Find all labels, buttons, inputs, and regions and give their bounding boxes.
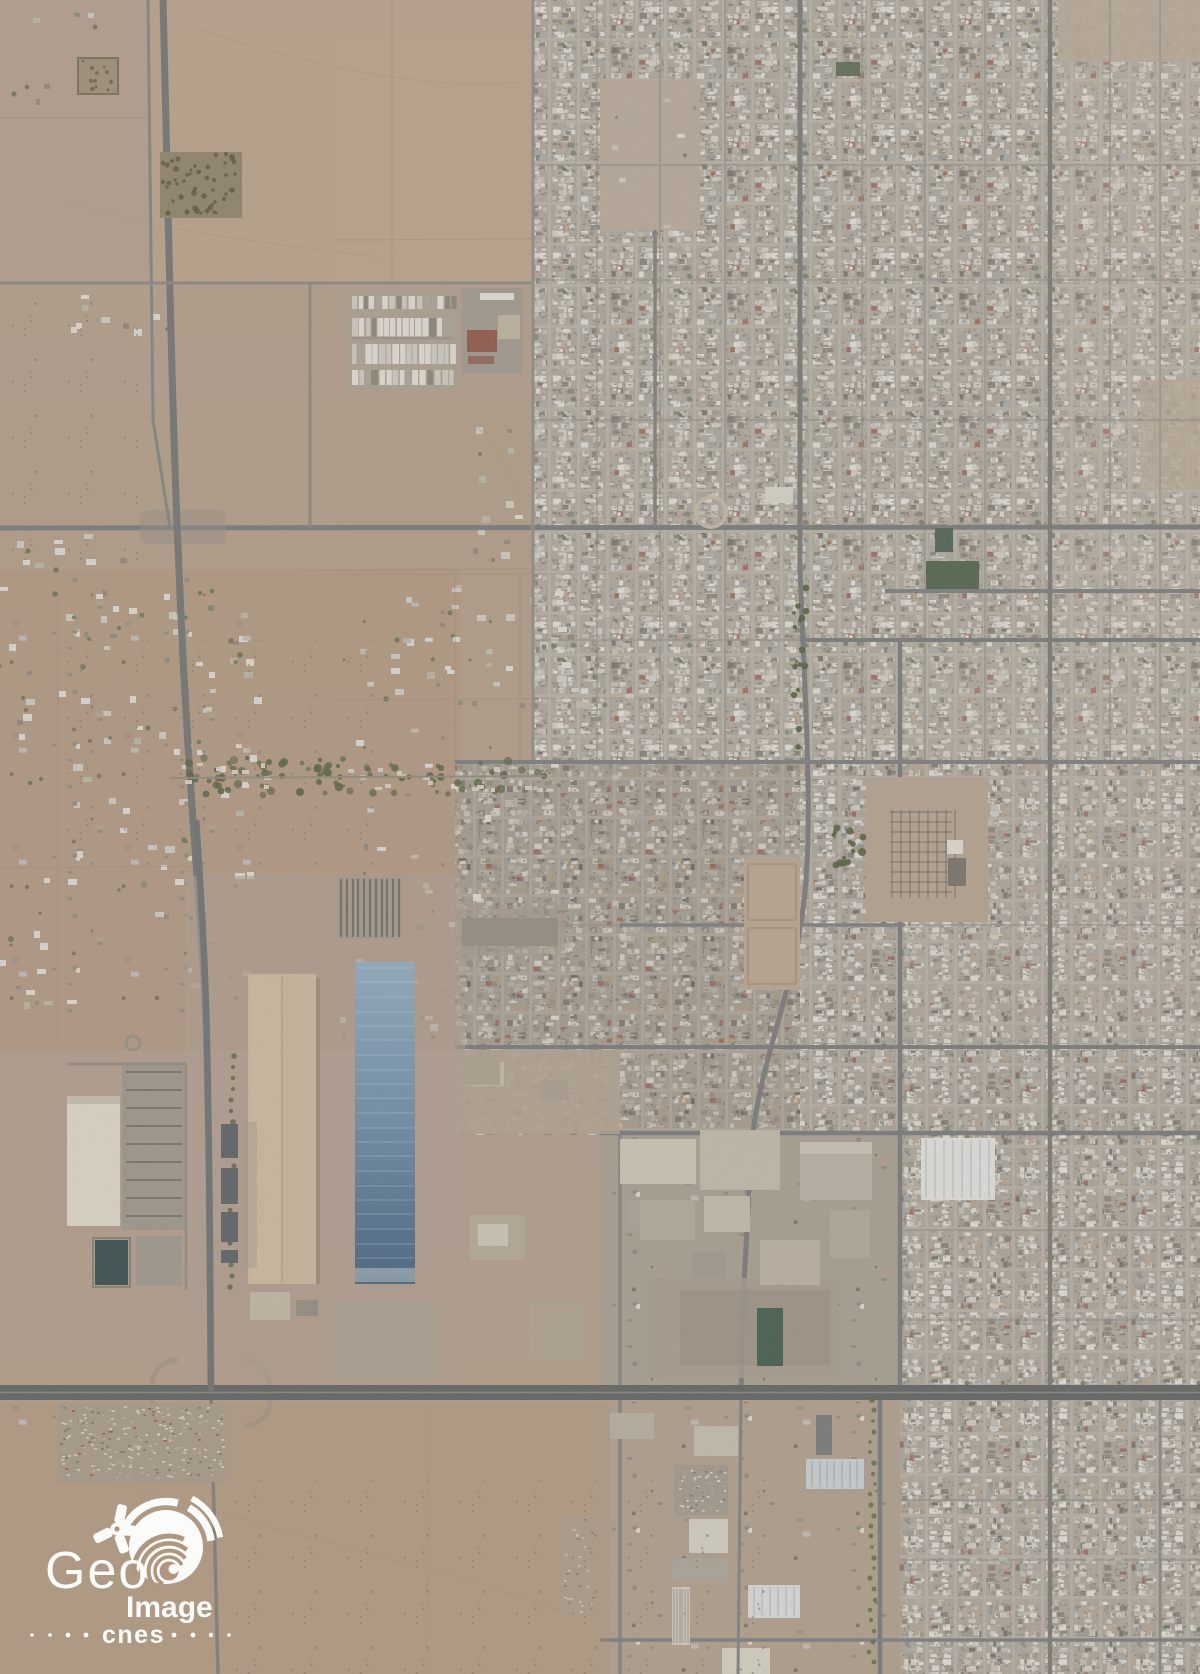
svg-text:Image: Image	[126, 1591, 213, 1624]
svg-text:cnes: cnes	[102, 1621, 165, 1649]
